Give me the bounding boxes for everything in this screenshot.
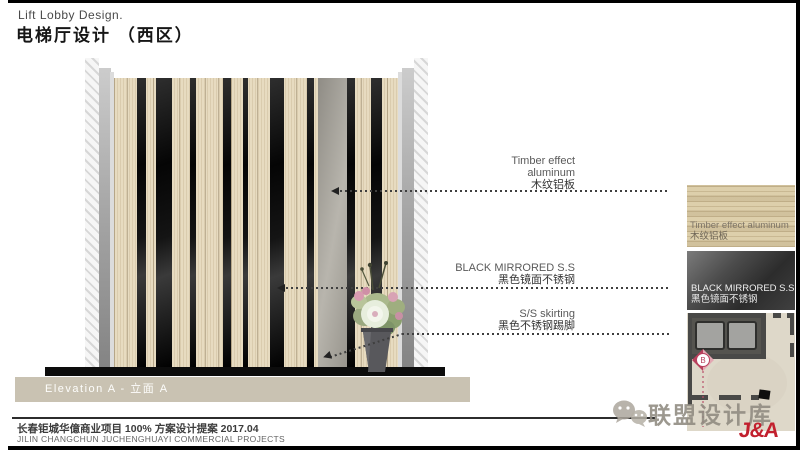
- sample-wood-label-en: Timber effect aluminum: [690, 220, 789, 231]
- callout-timber-en-line2: aluminum: [420, 167, 575, 179]
- plant-illustration: [335, 258, 415, 373]
- leader-arrow-mirror: [277, 284, 285, 292]
- wechat-icon: [610, 398, 648, 428]
- material-sample-black-mirror: BLACK MIRRORED S.S 黑色镜面不锈钢: [687, 251, 795, 310]
- frame-bottom-border: [8, 446, 800, 450]
- presentation-slide: Lift Lobby Design. 电梯厅设计 （西区） Elevation …: [0, 0, 800, 450]
- frame-top-border: [8, 0, 800, 3]
- left-hatched-column: [85, 58, 99, 376]
- callout-mirror-zh: 黑色镜面不锈钢: [420, 274, 575, 286]
- elevation-caption: Elevation A - 立面 A: [15, 377, 470, 402]
- page-title-chinese: 电梯厅设计 （西区）: [16, 21, 194, 46]
- sample-black-label-en: BLACK MIRRORED S.S: [691, 283, 794, 294]
- callout-mirror: BLACK MIRRORED S.S 黑色镜面不锈钢: [420, 262, 575, 286]
- material-sample-wood: Timber effect aluminum 木纹铝板: [687, 185, 795, 247]
- page-title-english: Lift Lobby Design.: [18, 8, 123, 22]
- callout-mirror-en: BLACK MIRRORED S.S: [420, 262, 575, 274]
- callout-skirting: S/S skirting 黑色不锈钢踢脚: [420, 308, 575, 332]
- sample-wood-label-zh: 木纹铝板: [690, 231, 789, 242]
- frame-right-border: [796, 0, 800, 450]
- sample-black-label-zh: 黑色镜面不锈钢: [691, 294, 794, 305]
- footer-project-english: JILIN CHANGCHUN JUCHENGHUAYI COMMERCIAL …: [17, 434, 285, 444]
- black-slat-strip: [223, 78, 231, 368]
- leader-line-skirting: [402, 333, 670, 335]
- black-slat-strip: [190, 78, 196, 368]
- callout-timber: Timber effect aluminum 木纹铝板: [420, 155, 575, 191]
- callout-skirting-zh: 黑色不锈钢踢脚: [420, 320, 575, 332]
- leader-arrow-timber: [331, 187, 339, 195]
- plant-decor: [335, 258, 415, 373]
- black-slat-strip: [243, 78, 248, 368]
- callout-skirting-en: S/S skirting: [420, 308, 575, 320]
- leader-line-timber: [340, 190, 670, 192]
- callout-timber-en-line1: Timber effect: [420, 155, 575, 167]
- black-slat-strip: [270, 78, 284, 368]
- black-slat-strip: [307, 78, 314, 368]
- elevation-caption-bar: Elevation A - 立面 A: [15, 377, 470, 402]
- plan-marker-letter: B: [700, 356, 705, 365]
- jna-logo: J&A: [738, 419, 780, 443]
- footer-divider: [12, 417, 655, 419]
- black-slat-strip: [156, 78, 172, 368]
- black-slat-strip: [137, 78, 146, 368]
